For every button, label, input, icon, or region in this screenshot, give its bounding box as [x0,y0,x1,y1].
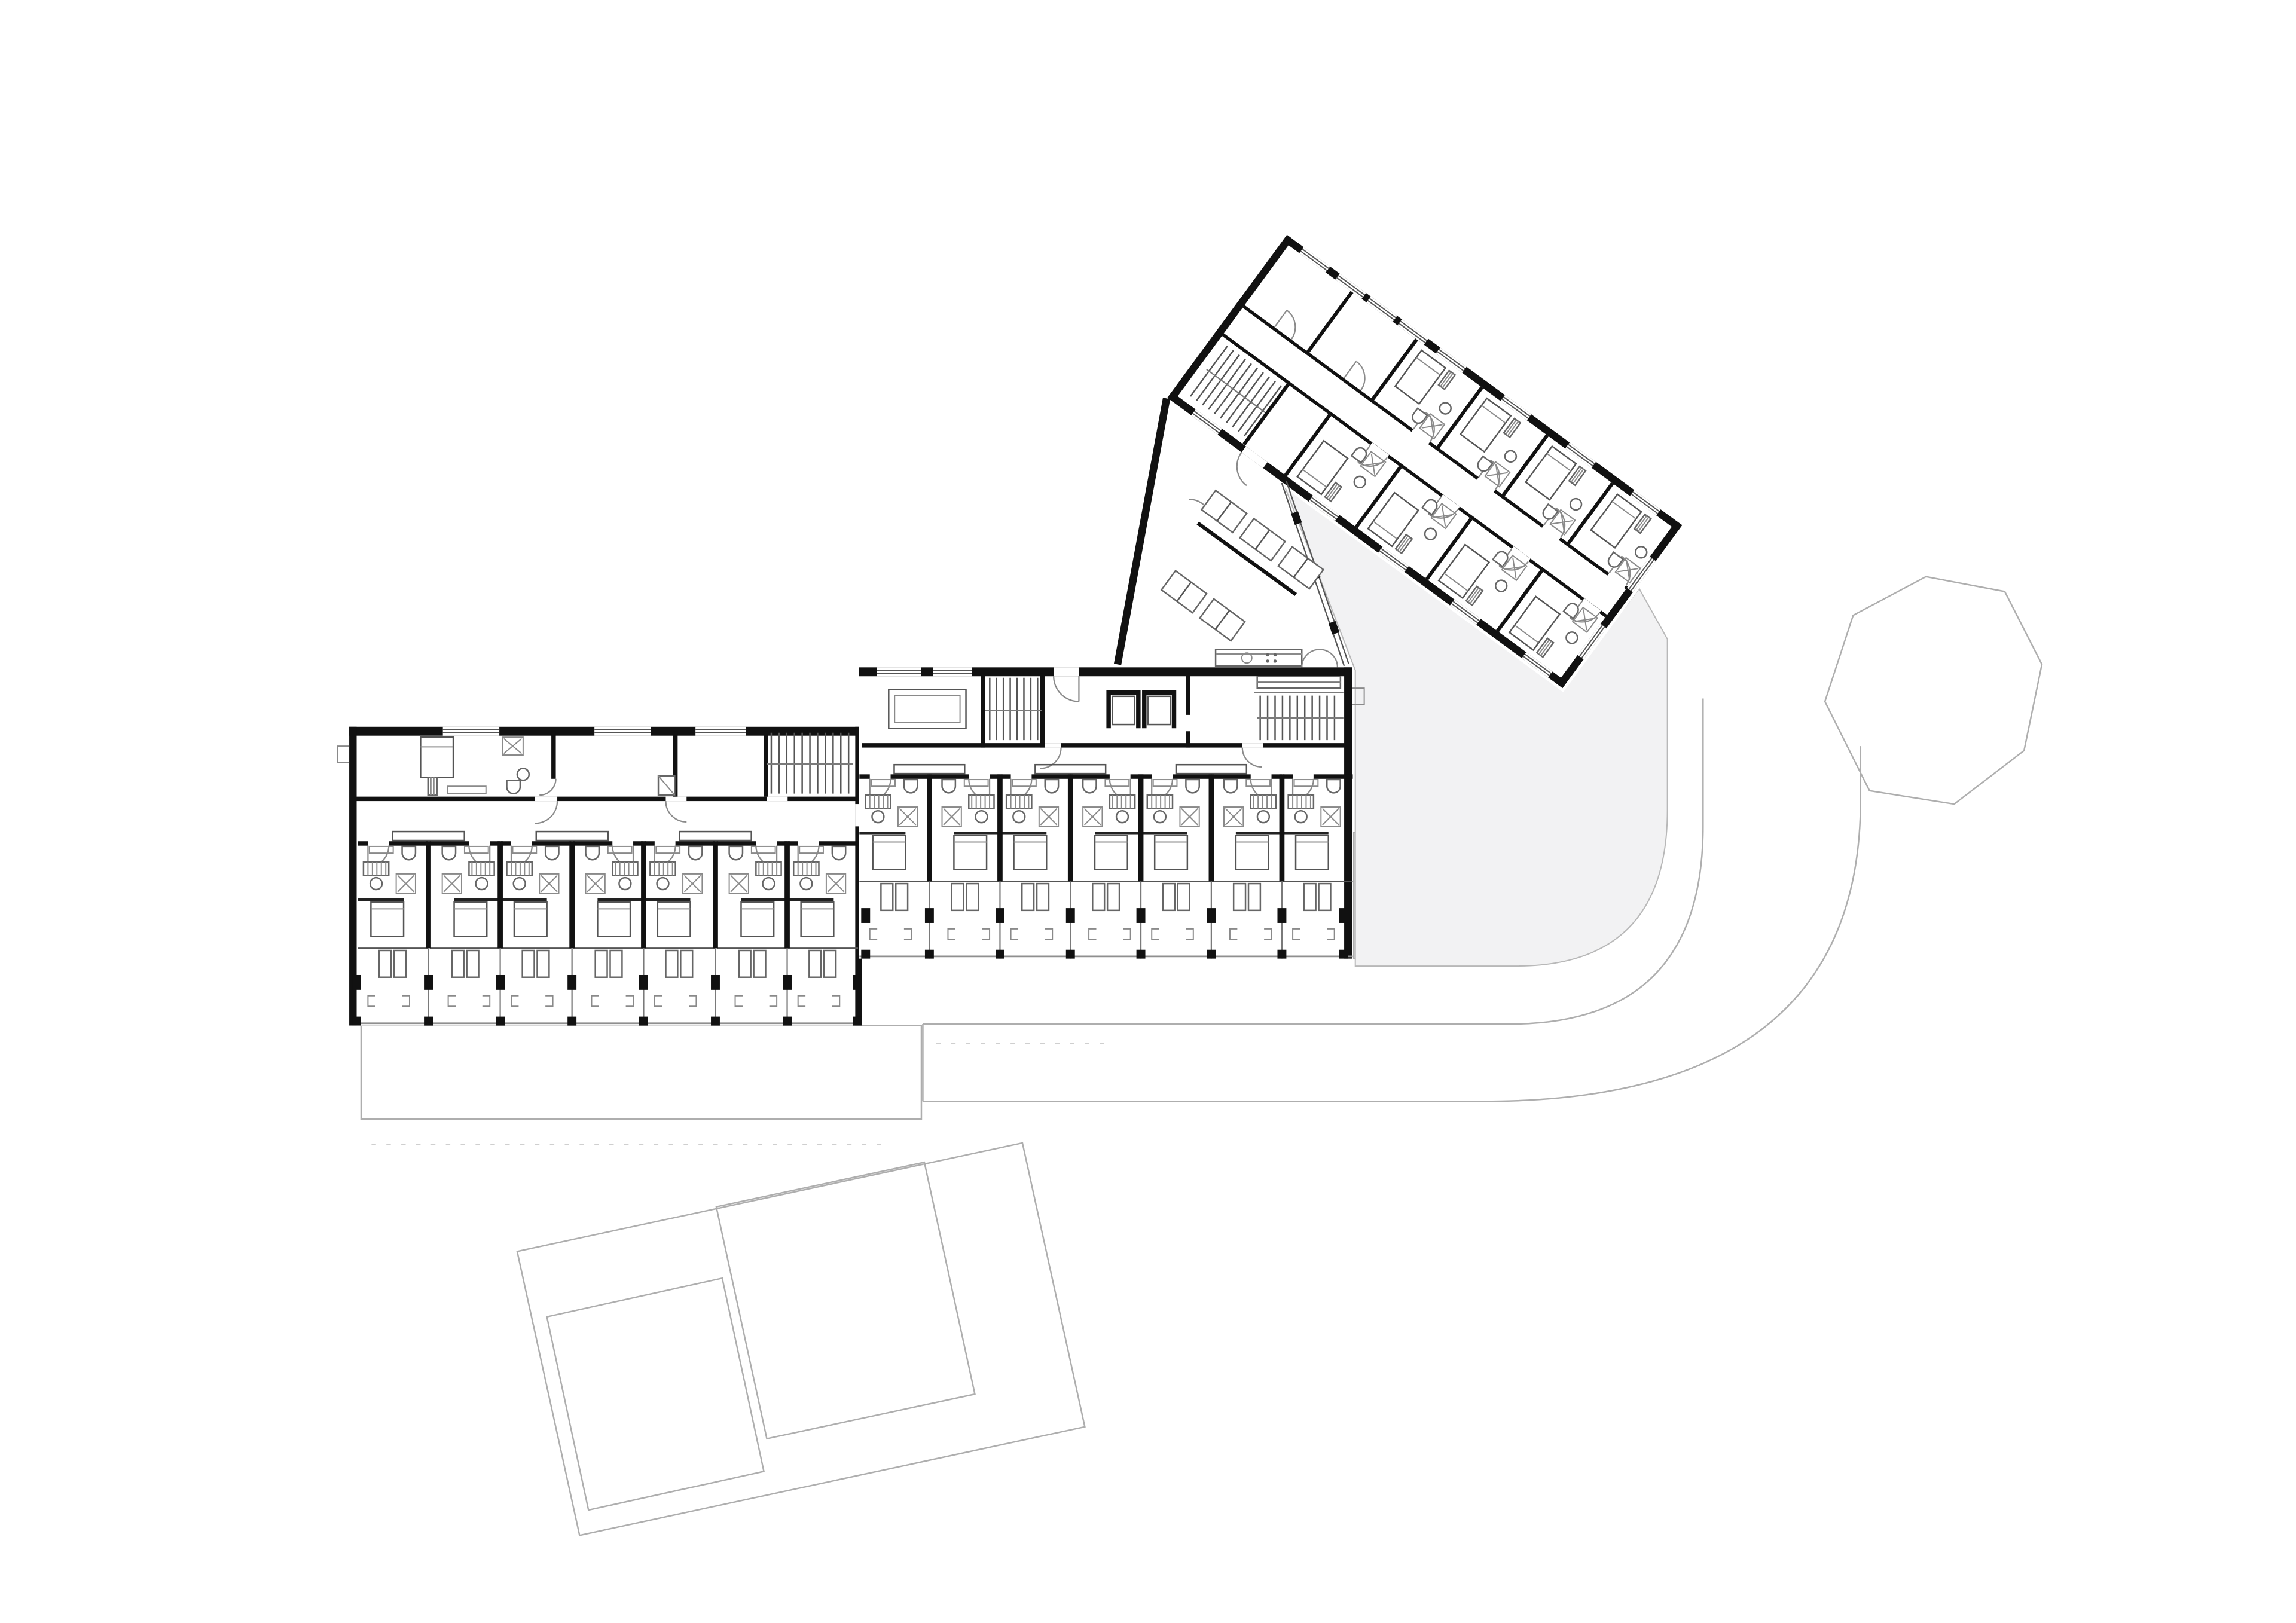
center-wing [855,667,1364,958]
window-strip [443,727,746,736]
entrance-door-gap [1054,667,1079,676]
service-shaft [658,776,674,795]
interior-wall [1186,673,1190,715]
exterior-wall [859,667,1352,676]
toilet-icon [507,780,520,793]
floor-plan-canvas [0,0,2296,1623]
corridor-opening [855,804,862,826]
interior-wall [981,673,985,747]
interior-wall [1186,731,1190,747]
kitchenette [1216,649,1302,665]
interior-wall [551,731,555,779]
corridor-wall [862,743,1345,747]
west-wing [337,727,865,1026]
wardrobe-icon [428,777,437,795]
washbasin-icon [517,768,529,780]
stair-icon [767,733,853,794]
